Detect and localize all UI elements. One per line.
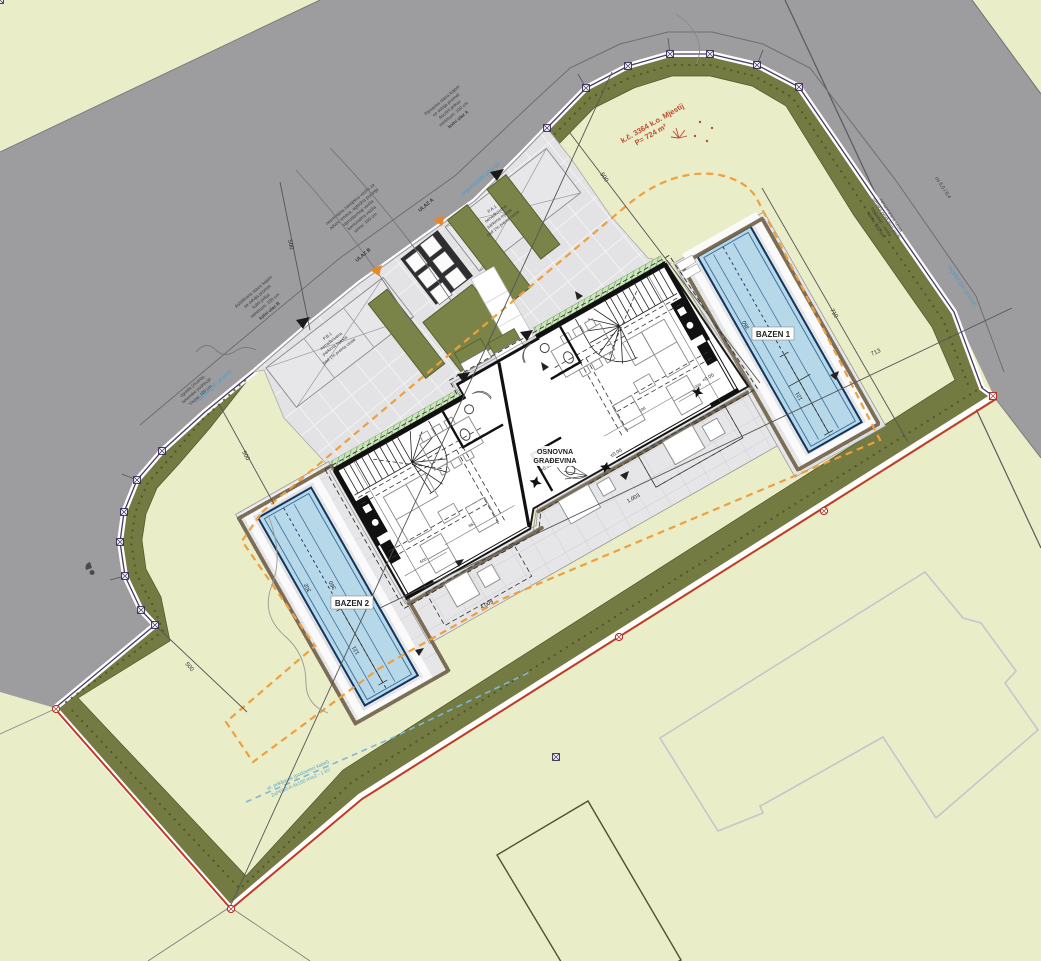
svg-text:GRAĐEVINA: GRAĐEVINA xyxy=(533,456,576,465)
svg-text:OSNOVNA: OSNOVNA xyxy=(537,447,573,456)
svg-text:BAZEN 1: BAZEN 1 xyxy=(756,330,791,339)
svg-text:BAZEN 2: BAZEN 2 xyxy=(335,599,370,608)
